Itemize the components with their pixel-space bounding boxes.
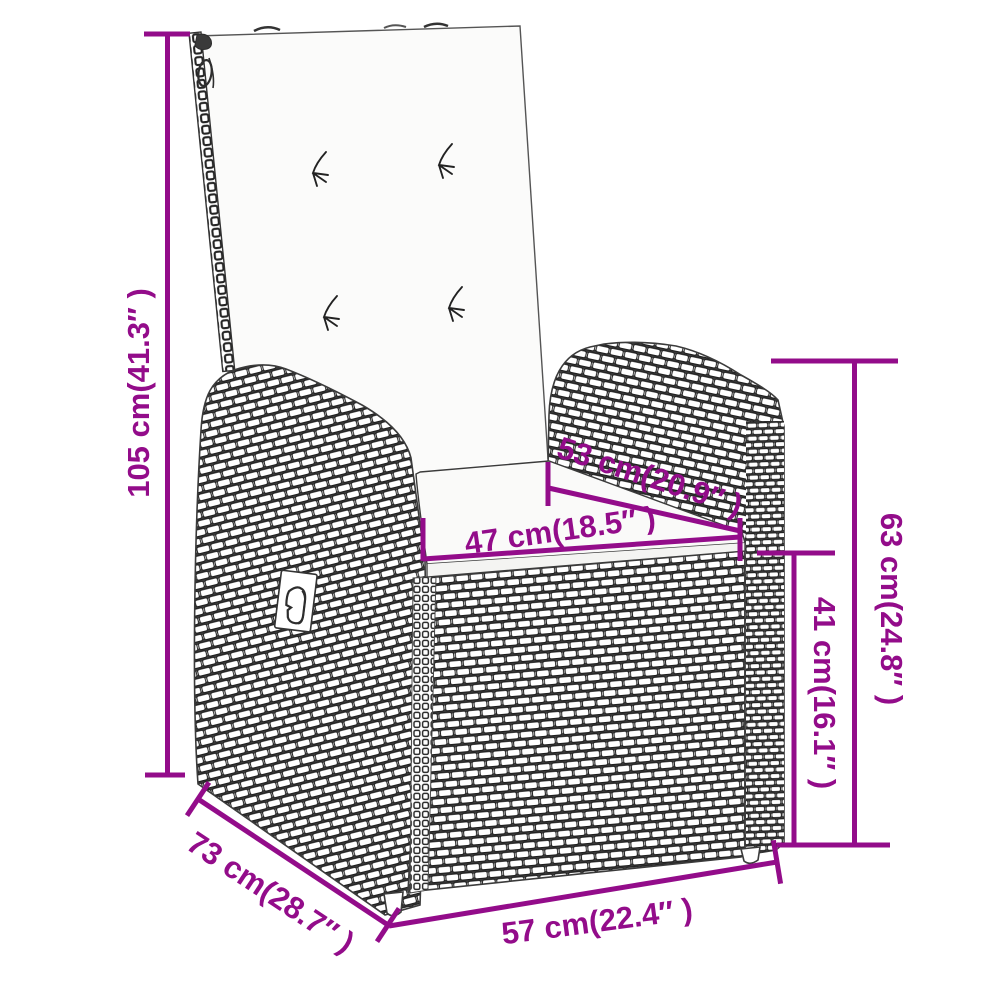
svg-text:63 cm(24.8″ ): 63 cm(24.8″ ): [874, 513, 909, 705]
svg-text:41 cm(16.1″ ): 41 cm(16.1″ ): [807, 597, 842, 789]
svg-text:105 cm(41.3″ ): 105 cm(41.3″ ): [121, 288, 156, 498]
